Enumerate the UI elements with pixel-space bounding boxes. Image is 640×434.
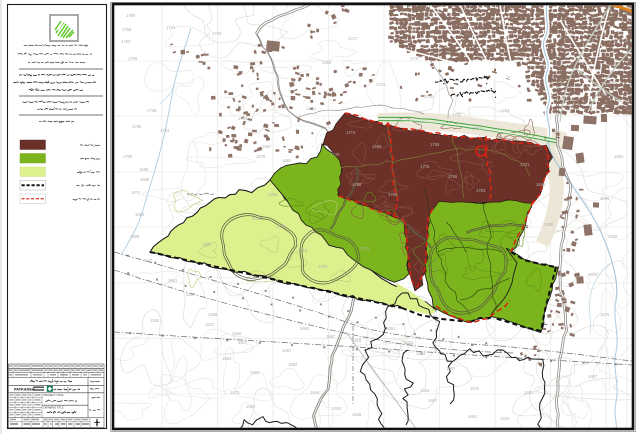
svg-text:1799: 1799 <box>598 92 608 97</box>
svg-text:1721: 1721 <box>360 246 370 251</box>
svg-text:1674: 1674 <box>131 190 141 195</box>
svg-text:1694: 1694 <box>135 212 145 217</box>
svg-text:1431: 1431 <box>252 216 262 221</box>
svg-text:1730: 1730 <box>318 264 328 269</box>
svg-text:1799: 1799 <box>126 13 136 18</box>
svg-text:1322: 1322 <box>306 106 316 111</box>
svg-text:1592: 1592 <box>222 356 232 361</box>
svg-text:1733: 1733 <box>330 152 340 157</box>
svg-text:1731: 1731 <box>376 82 386 87</box>
svg-text:1765: 1765 <box>448 174 458 179</box>
svg-text:1678: 1678 <box>256 154 266 159</box>
svg-text:1675: 1675 <box>230 390 240 395</box>
svg-text:1754: 1754 <box>160 128 170 133</box>
svg-text:1718: 1718 <box>352 338 362 343</box>
svg-text:1663: 1663 <box>420 388 430 393</box>
svg-text:1607: 1607 <box>588 374 598 379</box>
svg-text:1693: 1693 <box>300 326 310 331</box>
svg-text:1652: 1652 <box>332 406 342 411</box>
svg-text:1763: 1763 <box>121 39 131 44</box>
svg-text:DRAWING TITLE: DRAWING TITLE <box>44 406 64 410</box>
svg-text:1647: 1647 <box>143 258 153 263</box>
svg-text:1657: 1657 <box>282 348 292 353</box>
svg-text:1741: 1741 <box>166 25 176 30</box>
svg-text:1756: 1756 <box>132 124 142 129</box>
svg-text:1753: 1753 <box>472 126 482 131</box>
svg-text:1685: 1685 <box>139 167 149 172</box>
svg-text:1687: 1687 <box>446 366 456 371</box>
svg-text:1658: 1658 <box>202 242 212 247</box>
svg-text:1662: 1662 <box>288 362 298 367</box>
svg-text:1658: 1658 <box>268 192 278 197</box>
svg-text:1694: 1694 <box>614 154 624 159</box>
svg-text:1363: 1363 <box>322 60 332 65</box>
svg-text:1774: 1774 <box>346 130 356 135</box>
svg-text:1563: 1563 <box>250 370 260 375</box>
svg-text:1688: 1688 <box>130 234 140 239</box>
svg-text:1683: 1683 <box>416 351 426 356</box>
svg-text:1687: 1687 <box>428 398 438 403</box>
svg-text:1643: 1643 <box>588 272 598 277</box>
svg-text:1725: 1725 <box>424 94 434 99</box>
svg-text:1748: 1748 <box>147 108 157 113</box>
svg-text:1756: 1756 <box>388 192 398 197</box>
svg-text:1691: 1691 <box>386 326 396 331</box>
svg-text:1752: 1752 <box>452 112 462 117</box>
svg-text:1690: 1690 <box>140 177 150 182</box>
svg-text:1697: 1697 <box>326 334 336 339</box>
svg-text:1693: 1693 <box>404 340 414 345</box>
svg-text:1592: 1592 <box>246 404 256 409</box>
svg-text:1727: 1727 <box>348 36 358 41</box>
svg-text:1690: 1690 <box>544 222 554 227</box>
svg-text:1661: 1661 <box>468 414 478 419</box>
svg-text:PROJECT TITLE: PROJECT TITLE <box>44 393 64 397</box>
svg-text:1592: 1592 <box>150 318 160 323</box>
svg-text:PAYKADEH: PAYKADEH <box>14 387 35 391</box>
svg-text:1696: 1696 <box>600 196 610 201</box>
svg-text:1743: 1743 <box>212 31 222 36</box>
svg-text:1659: 1659 <box>208 312 218 317</box>
svg-text:1682: 1682 <box>282 158 292 163</box>
svg-text:1758: 1758 <box>122 27 132 32</box>
svg-text:1733: 1733 <box>238 116 248 121</box>
svg-text:1677: 1677 <box>238 340 248 345</box>
svg-text:1736: 1736 <box>276 224 286 229</box>
svg-text:1696: 1696 <box>536 182 546 187</box>
svg-text:1755: 1755 <box>430 142 440 147</box>
svg-text:1700: 1700 <box>608 234 618 239</box>
svg-text:1643: 1643 <box>500 416 510 421</box>
svg-text:1638: 1638 <box>352 412 362 417</box>
svg-text:1687: 1687 <box>524 390 534 395</box>
svg-text:1769: 1769 <box>372 144 382 149</box>
svg-text:1675: 1675 <box>600 312 610 317</box>
svg-text:1747: 1747 <box>410 56 420 61</box>
svg-text:1776: 1776 <box>420 164 430 169</box>
svg-text:1763: 1763 <box>476 188 486 193</box>
svg-text:1644: 1644 <box>310 390 320 395</box>
svg-text:1758: 1758 <box>352 182 362 187</box>
svg-text:1657: 1657 <box>186 292 196 297</box>
svg-text:1631: 1631 <box>205 322 215 327</box>
svg-text:1754: 1754 <box>500 108 510 113</box>
svg-text:1716: 1716 <box>298 248 308 253</box>
svg-text:1675: 1675 <box>470 386 480 391</box>
svg-text:1651: 1651 <box>168 278 178 283</box>
svg-text:1731: 1731 <box>520 162 530 167</box>
svg-text:1687: 1687 <box>262 144 272 149</box>
svg-text:1700: 1700 <box>123 154 133 159</box>
svg-text:1769: 1769 <box>128 56 138 61</box>
svg-text:1834: 1834 <box>608 80 618 85</box>
svg-text:1660: 1660 <box>232 331 242 336</box>
